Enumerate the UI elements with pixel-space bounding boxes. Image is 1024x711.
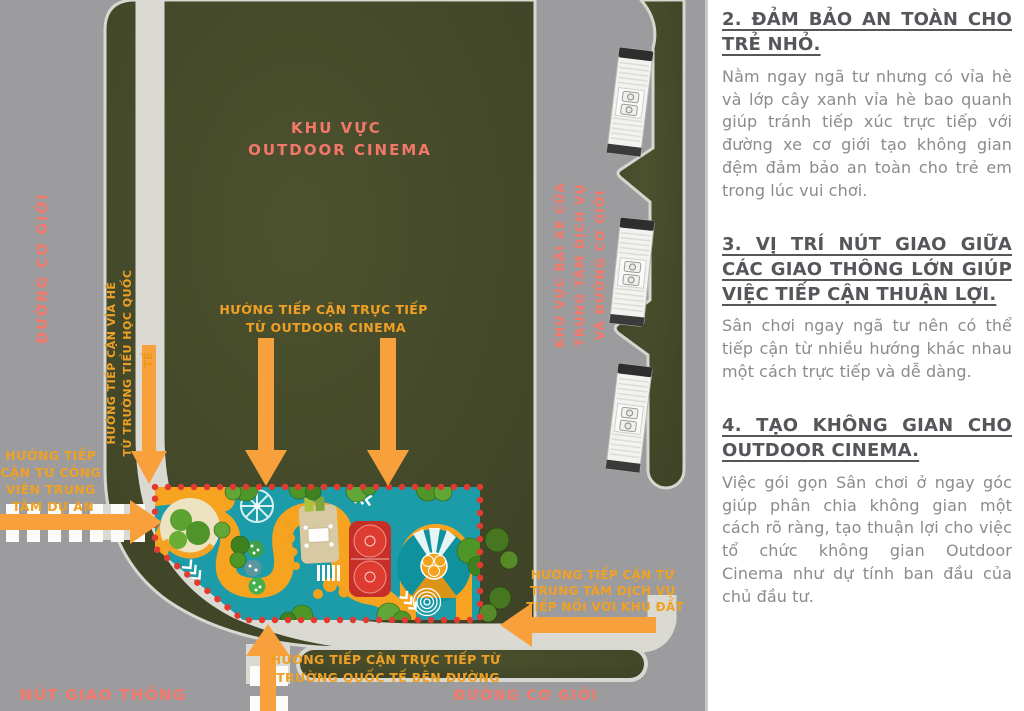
section-safety: 2. ĐẢM BẢO AN TOÀN CHO TRẺ NHỎ. Nằm ngay… xyxy=(722,8,1012,203)
section-cinema-space: 4. TẠO KHÔNG GIAN CHO OUTDOOR CINEMA. Vi… xyxy=(722,414,1012,609)
svg-text:TẾ: TẾ xyxy=(140,352,155,368)
section-intersection: 3. VỊ TRÍ NÚT GIAO GIỮA CÁC GIAO THÔNG L… xyxy=(722,233,1012,384)
section-safety-heading: 2. ĐẢM BẢO AN TOÀN CHO TRẺ NHỎ. xyxy=(722,8,1012,58)
notes-panel: 2. ĐẢM BẢO AN TOÀN CHO TRẺ NHỎ. Nằm ngay… xyxy=(705,0,1024,711)
site-plan-infographic: KHU VỰC OUTDOOR CINEMA ĐƯỜNG CƠ GIỚI KHU… xyxy=(0,0,1024,711)
site-plan-map: KHU VỰC OUTDOOR CINEMA ĐƯỜNG CƠ GIỚI KHU… xyxy=(0,0,705,711)
access-service-label: HƯỚNG TIẾP CẬN TỪ TRUNG TÂM DỊCH VỤ TIẾP… xyxy=(526,566,684,614)
parking-label: KHU VỰC BÃI XE CỦA TRUNG TÂM DỊCH VỤ VÀ … xyxy=(551,182,607,348)
intersection-label: NÚT GIAO THÔNG xyxy=(19,685,186,704)
svg-text:TỪ TRƯỜNG TIỂU HỌC QUỐC: TỪ TRƯỜNG TIỂU HỌC QUỐC xyxy=(119,270,134,457)
section-cinema-space-heading: 4. TẠO KHÔNG GIAN CHO OUTDOOR CINEMA. xyxy=(722,414,1012,464)
section-safety-body: Nằm ngay ngã tư nhưng có vỉa hè và lớp c… xyxy=(722,66,1012,203)
section-intersection-heading: 3. VỊ TRÍ NÚT GIAO GIỮA CÁC GIAO THÔNG L… xyxy=(722,233,1012,307)
section-cinema-space-body: Việc gói gọn Sân chơi ở ngay góc giúp ph… xyxy=(722,472,1012,609)
svg-text:VÀ ĐƯỜNG CƠ GIỚI: VÀ ĐƯỜNG CƠ GIỚI xyxy=(592,190,607,341)
svg-text:TRUNG TÂM DỊCH VỤ: TRUNG TÂM DỊCH VỤ xyxy=(572,183,587,346)
road-bottom-label: ĐƯỜNG CƠ GIỚI xyxy=(454,686,599,704)
section-intersection-body: Sân chơi ngay ngã tư nên có thể tiếp cận… xyxy=(722,315,1012,384)
svg-text:HƯỚNG TIẾP CẬN VỈA HÈ: HƯỚNG TIẾP CẬN VỈA HÈ xyxy=(103,282,118,445)
road-left-label: ĐƯỜNG CƠ GIỚI xyxy=(33,192,51,343)
svg-text:KHU VỰC BÃI XE CỦA: KHU VỰC BÃI XE CỦA xyxy=(551,182,567,348)
